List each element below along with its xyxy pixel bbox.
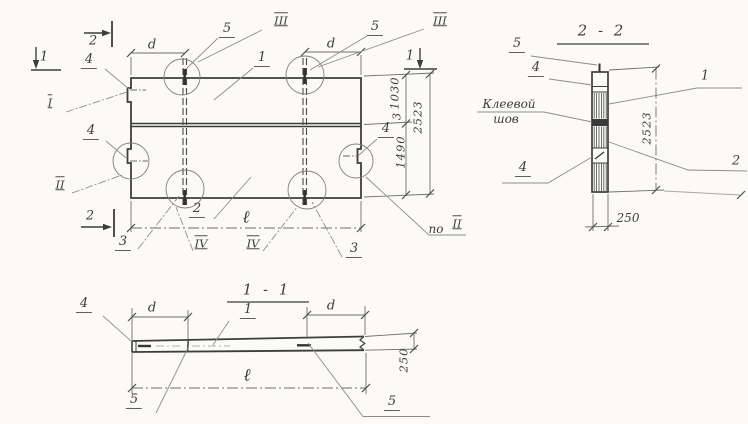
plan-dim-1490: 1490 xyxy=(395,135,407,168)
section-1-1-dim-d-left: d xyxy=(148,302,156,315)
plan-callout-5-right: 5 xyxy=(367,20,383,36)
section-1-1-dim-d-right: d xyxy=(327,300,335,313)
plan-dim-3: 3 xyxy=(391,112,403,120)
glue-seam-label-line2: шов xyxy=(493,113,519,125)
drawing-sheet: 2 1 1 2 d d 5 5 III III 1 4 I 4 II 2 ℓ I… xyxy=(0,0,748,424)
section-marker-1-left-label: 1 xyxy=(40,51,48,64)
plan-callout-2: 2 xyxy=(189,202,205,218)
section-2-2-dim-ticks xyxy=(589,65,745,232)
section-1-1-dim-length: ℓ xyxy=(243,368,250,385)
section-1-1-callout-5-right: 5 xyxy=(384,395,400,411)
detail-circle-top-left xyxy=(164,59,200,95)
section-1-1-title: 1 - 1 xyxy=(243,283,292,298)
plan-dim-d-left: d xyxy=(148,39,156,52)
section-1-1-leaders xyxy=(103,316,430,417)
panel-outline xyxy=(128,78,362,198)
section-2-2-callout-2: 2 xyxy=(732,155,740,168)
plan-callout-3-right: 3 xyxy=(346,242,362,258)
plan-dim-1030: 1030 xyxy=(389,76,401,109)
section-1-1-callout-4: 4 xyxy=(76,297,92,313)
section-marker-2-top-label: 2 xyxy=(89,35,97,48)
detail-circle-right xyxy=(339,144,373,178)
plan-callout-4-right: 4 xyxy=(378,122,394,138)
plan-detail-i: I xyxy=(46,97,55,109)
section-2-2-callout-4-bottom: 4 xyxy=(515,161,531,177)
bar-joint-tick xyxy=(188,340,189,352)
section-1-1-bar xyxy=(132,337,365,353)
plan-detail-iv-left: IV xyxy=(193,238,210,250)
plan-detail-iv-right: IV xyxy=(245,238,262,250)
section-1-1-callout-5-left: 5 xyxy=(126,393,142,409)
plan-view-po: по xyxy=(429,223,444,235)
glue-seam-label-line1: Клеевой xyxy=(482,98,535,110)
section-2-2-dim-250: 250 xyxy=(617,212,640,224)
plan-dim-2523: 2523 xyxy=(412,100,424,133)
plan-view-po-ref: II xyxy=(450,218,463,230)
section-2-2-title: 2 - 2 xyxy=(578,24,627,39)
section-1-1-dim-250: 250 xyxy=(398,348,410,373)
bar-hatching xyxy=(594,93,606,191)
plan-callout-4-top-left: 4 xyxy=(81,53,97,69)
plan-dim-d-right: d xyxy=(327,38,335,51)
glue-seam-line xyxy=(131,124,361,127)
section-2-2-dim-2523: 2523 xyxy=(641,111,653,144)
plan-callout-1: 1 xyxy=(254,51,270,67)
section-2-2-callout-5: 5 xyxy=(509,37,525,53)
plan-callout-3-left: 3 xyxy=(115,235,131,251)
plan-detail-iii-left: III xyxy=(272,15,290,27)
section-1-1-view xyxy=(103,302,430,417)
notch-marks xyxy=(130,90,359,161)
section-2-2-callout-1: 1 xyxy=(701,70,709,83)
plan-callout-5-left: 5 xyxy=(219,22,235,38)
section-2-2-callout-4-top: 4 xyxy=(528,61,544,77)
plan-callout-4-left: 4 xyxy=(83,124,99,140)
section-marker-2-bottom-label: 2 xyxy=(86,210,94,223)
plan-detail-ii: II xyxy=(53,179,66,191)
plan-detail-iii-right: III xyxy=(431,15,449,27)
plan-dim-length: ℓ xyxy=(242,210,249,227)
section-marker-1-right-label: 1 xyxy=(406,50,414,63)
block-mark xyxy=(595,152,604,159)
glue-seam-band xyxy=(592,119,608,126)
section-1-1-callout-1: 1 xyxy=(240,303,256,319)
